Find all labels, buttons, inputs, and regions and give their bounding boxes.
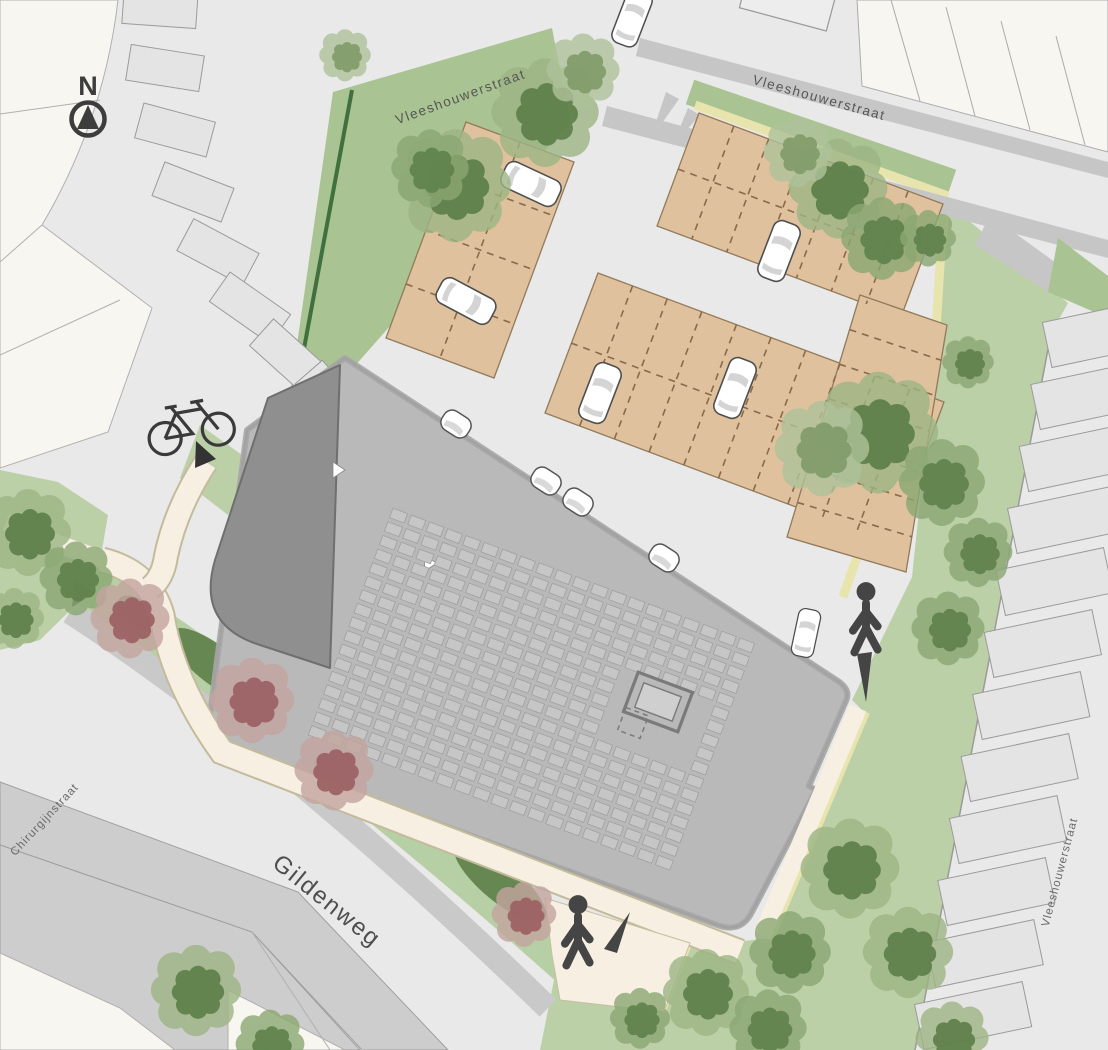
tree-icon [929,609,971,652]
tree-icon [410,148,455,193]
tree-icon [768,930,815,978]
tree-icon [57,559,99,602]
tree-icon [823,841,881,899]
tree-icon [884,928,936,981]
site-plan-canvas: N Vleeshouwerstraat Vleeshouwerstraat Vl… [0,0,1108,1050]
blossom-tree-icon [508,898,545,935]
tree-icon [332,42,362,72]
tree-icon [796,422,851,478]
tree-icon [914,224,947,257]
tree-icon [780,134,820,174]
tree-icon [624,1002,659,1038]
blossom-tree-icon [313,749,359,795]
tree-icon [960,534,1000,574]
tree-icon [683,969,733,1019]
tree-icon [0,602,34,638]
tree-icon [564,51,606,94]
site-plan: N Vleeshouwerstraat Vleeshouwerstraat Vl… [0,0,1108,1050]
tree-icon [5,509,55,559]
tree-icon [172,966,224,1019]
tree-icon [748,1008,793,1050]
parking-stall [122,0,198,29]
tree-icon [955,349,985,379]
blossom-tree-icon [109,597,155,643]
tree-icon [919,459,969,509]
north-label: N [78,71,98,101]
blossom-tree-icon [229,677,278,727]
